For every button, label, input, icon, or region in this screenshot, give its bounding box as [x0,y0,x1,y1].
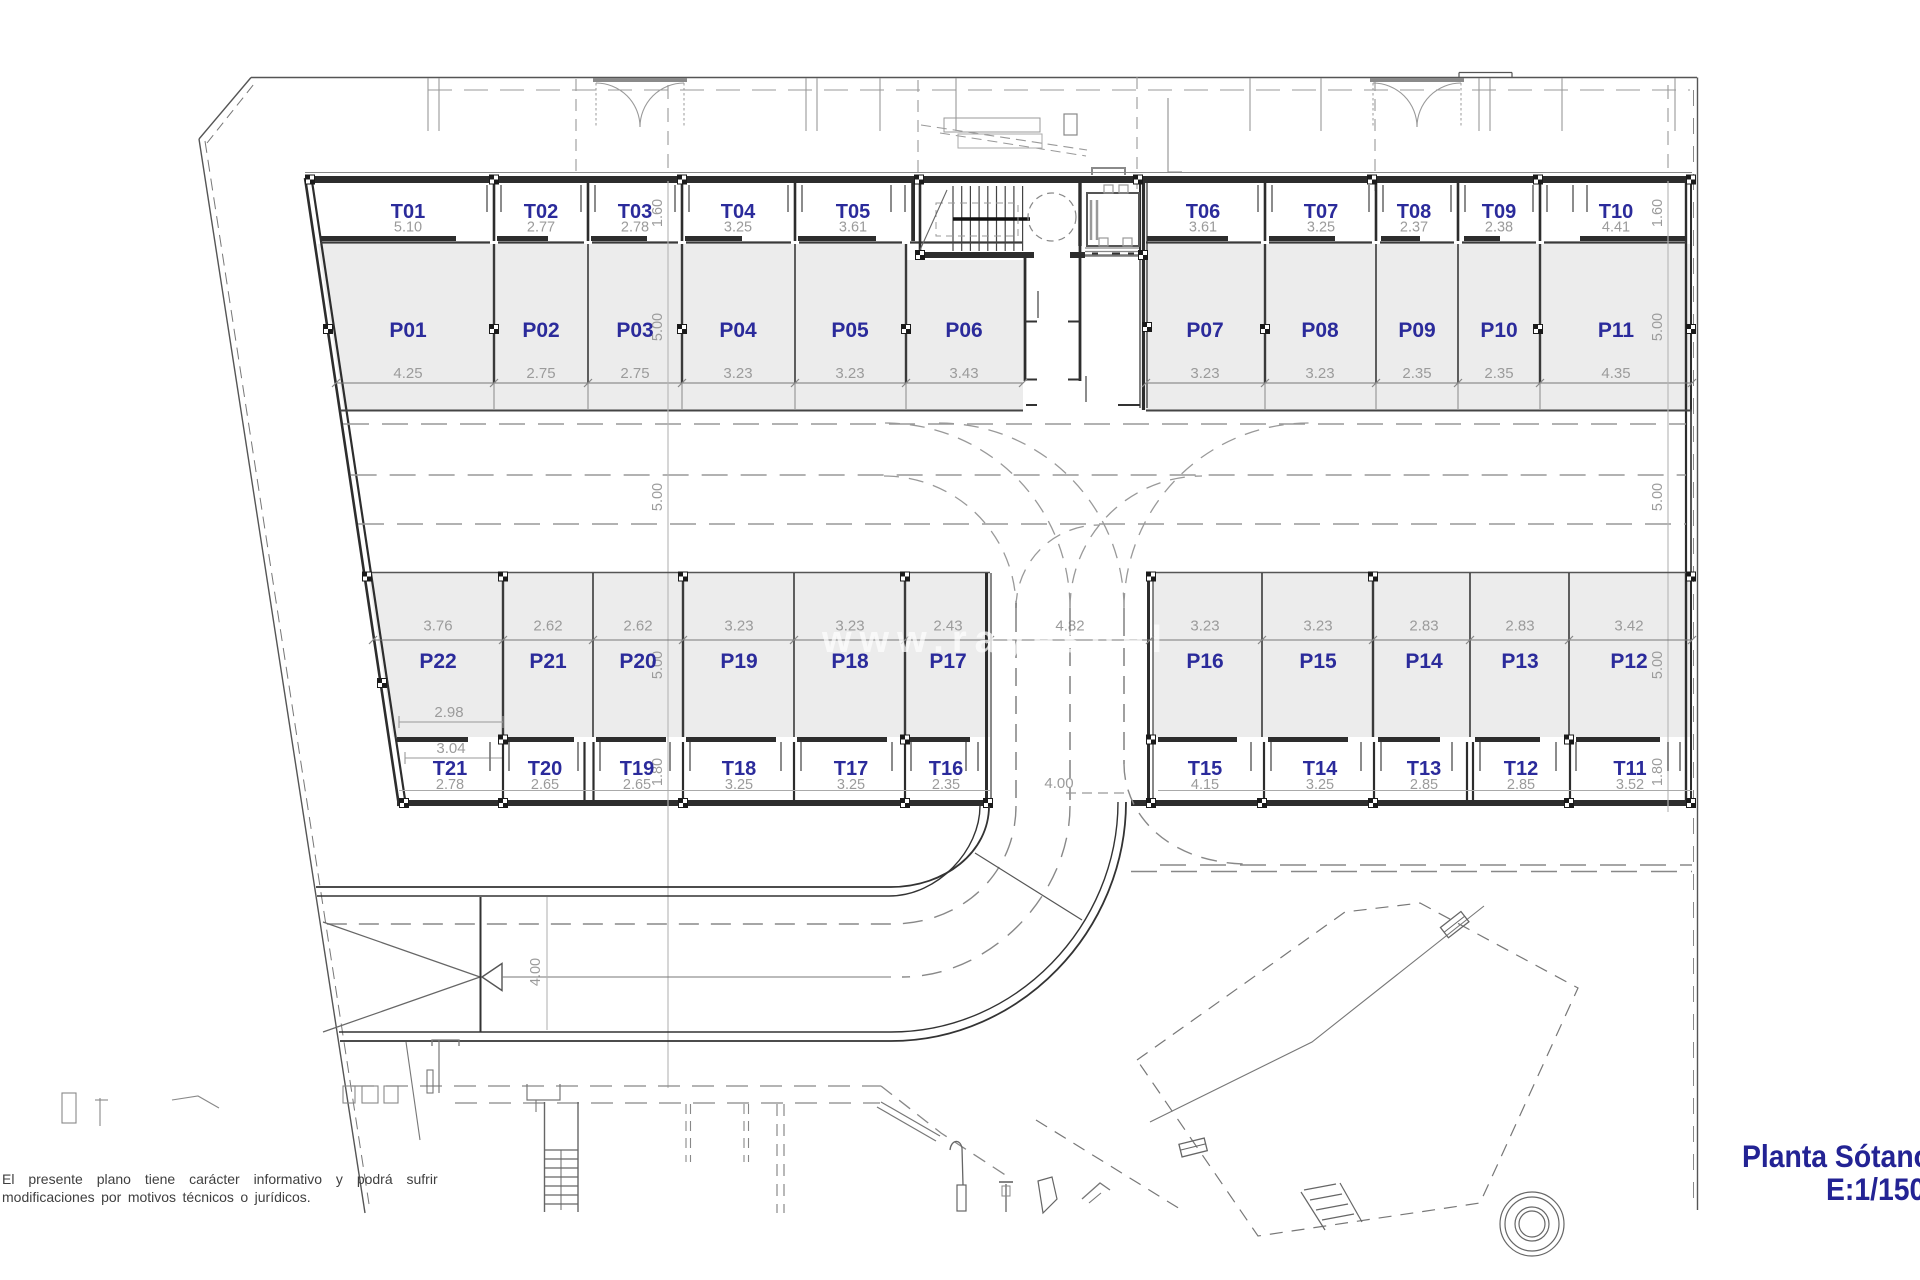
svg-text:2.38: 2.38 [1485,220,1513,236]
svg-text:5.00: 5.00 [650,313,666,341]
svg-text:3.42: 3.42 [1614,618,1643,635]
svg-text:P06: P06 [945,319,982,342]
svg-text:4.00: 4.00 [1044,775,1073,792]
svg-text:E:1/150: E:1/150 [1826,1173,1920,1208]
svg-text:3.23: 3.23 [835,365,864,382]
svg-text:2.75: 2.75 [526,365,555,382]
svg-text:P14: P14 [1405,650,1443,673]
svg-text:3.23: 3.23 [1190,618,1219,635]
svg-text:1.80: 1.80 [1650,758,1666,786]
svg-text:El presente plano tiene caráct: El presente plano tiene carácter informa… [2,1171,438,1187]
svg-text:P08: P08 [1301,319,1339,342]
svg-text:2.78: 2.78 [621,220,649,236]
svg-text:3.76: 3.76 [423,618,452,635]
svg-text:P19: P19 [720,650,757,673]
svg-text:2.83: 2.83 [1409,618,1438,635]
svg-text:5.00: 5.00 [1650,313,1666,341]
svg-text:P09: P09 [1398,319,1435,342]
svg-text:modificaciones por motivos téc: modificaciones por motivos técnicos o ju… [2,1189,311,1205]
svg-text:2.62: 2.62 [623,618,652,635]
svg-text:5.00: 5.00 [1650,483,1666,511]
svg-text:3.43: 3.43 [949,365,978,382]
svg-text:2.83: 2.83 [1505,618,1534,635]
svg-text:P22: P22 [419,650,456,673]
svg-text:1.60: 1.60 [1650,199,1666,227]
svg-text:2.77: 2.77 [527,220,555,236]
svg-text:3.23: 3.23 [1190,365,1219,382]
svg-text:5.00: 5.00 [650,483,666,511]
svg-text:Planta Sótano: Planta Sótano [1742,1140,1920,1175]
svg-text:3.61: 3.61 [1189,220,1217,236]
svg-text:4.00: 4.00 [528,958,544,986]
svg-text:2.35: 2.35 [1484,365,1513,382]
svg-text:P02: P02 [522,319,559,342]
svg-text:P04: P04 [719,319,757,342]
svg-text:3.23: 3.23 [723,365,752,382]
svg-text:P20: P20 [619,650,656,673]
svg-text:3.61: 3.61 [839,220,867,236]
svg-text:5.00: 5.00 [1650,651,1666,679]
svg-text:5.10: 5.10 [394,220,422,236]
svg-text:3.25: 3.25 [724,220,752,236]
svg-text:4.41: 4.41 [1602,220,1630,236]
svg-text:1.60: 1.60 [650,199,666,227]
svg-text:4.35: 4.35 [1601,365,1630,382]
svg-text:P11: P11 [1598,319,1635,342]
svg-text:3.23: 3.23 [724,618,753,635]
svg-text:P10: P10 [1480,319,1517,342]
svg-text:2.75: 2.75 [620,365,649,382]
svg-text:2.35: 2.35 [1402,365,1431,382]
svg-text:P12: P12 [1610,650,1647,673]
svg-text:2.62: 2.62 [533,618,562,635]
svg-text:P13: P13 [1501,650,1538,673]
svg-text:3.23: 3.23 [1305,365,1334,382]
svg-text:2.37: 2.37 [1400,220,1428,236]
svg-text:2.98: 2.98 [434,704,463,721]
svg-text:3.25: 3.25 [1307,220,1335,236]
svg-text:3.23: 3.23 [1303,618,1332,635]
svg-text:P15: P15 [1299,650,1337,673]
svg-text:P07: P07 [1186,319,1223,342]
svg-text:P01: P01 [389,319,427,342]
svg-text:P21: P21 [529,650,567,673]
svg-text:P03: P03 [616,319,653,342]
svg-text:3.04: 3.04 [436,740,465,757]
svg-text:P16: P16 [1186,650,1223,673]
svg-text:www.rayesdel: www.rayesdel [821,619,1170,661]
svg-text:4.25: 4.25 [393,365,422,382]
svg-text:P05: P05 [831,319,869,342]
